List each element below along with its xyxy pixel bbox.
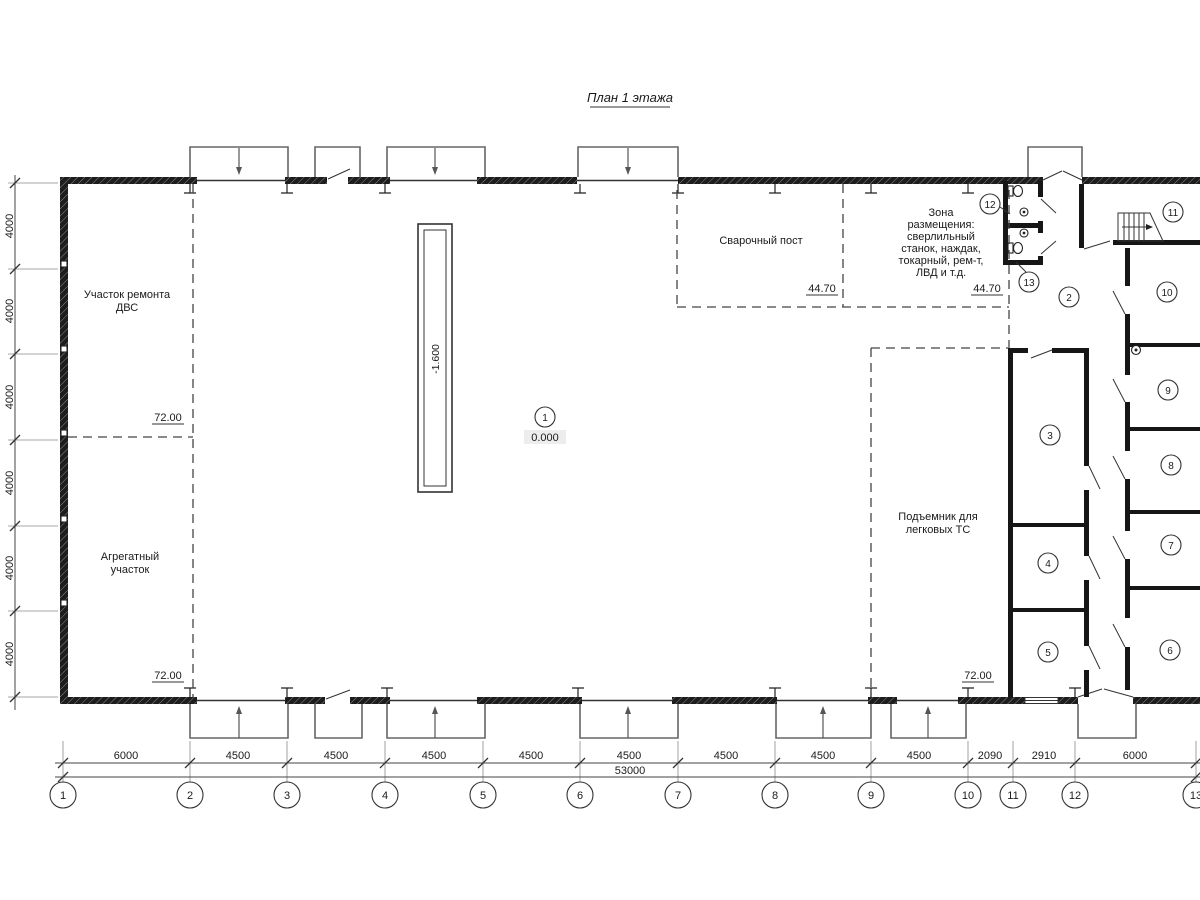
- room-label-zona-1: Зона: [929, 207, 955, 219]
- svg-text:1: 1: [542, 413, 548, 424]
- room-label-zona-5: токарный, рем-т,: [899, 255, 984, 267]
- dim-label: 4000: [4, 642, 16, 666]
- arrow-down-icon: [236, 148, 242, 175]
- room-label-podyemnik-2: легковых ТС: [906, 524, 971, 536]
- svg-text:4: 4: [1045, 559, 1051, 570]
- grid-bubble: 13: [1183, 782, 1200, 808]
- dim-label: 4000: [4, 471, 16, 495]
- sanitary-fixtures: [1008, 186, 1141, 355]
- svg-text:12: 12: [1069, 790, 1081, 802]
- room-number: 8: [1161, 455, 1181, 475]
- room-label-agregat-1: Агрегатный: [101, 551, 159, 563]
- dim-label: 4500: [519, 750, 543, 762]
- room-number: 2: [1059, 287, 1079, 307]
- grid-bubble: 1: [50, 782, 76, 808]
- hall-elevation: 0.000: [531, 432, 559, 444]
- svg-text:3: 3: [1047, 431, 1053, 442]
- elevation-label: 44.70: [973, 283, 1001, 295]
- svg-text:10: 10: [962, 790, 974, 802]
- toilet-icon: [1008, 243, 1023, 254]
- elevation-label: 44.70: [808, 283, 836, 295]
- svg-text:2: 2: [1066, 293, 1072, 304]
- room-labels: Участок ремонта ДВС 72.00 Агрегатный уча…: [84, 207, 1003, 682]
- svg-text:6: 6: [1167, 646, 1173, 657]
- dim-label: 4500: [324, 750, 348, 762]
- grid-bubble: 4: [372, 782, 398, 808]
- dim-label: 4000: [4, 385, 16, 409]
- dim-label: 4500: [811, 750, 835, 762]
- elevation-label: 72.00: [964, 670, 992, 682]
- grid-axis-bubbles: 1 2 3 4 5 6 7 8 9 10 11 12 13: [50, 782, 1200, 808]
- svg-text:7: 7: [1168, 541, 1174, 552]
- svg-text:13: 13: [1190, 790, 1200, 802]
- dim-label: 4000: [4, 556, 16, 580]
- svg-text:13: 13: [1023, 278, 1035, 289]
- elevation-label: 72.00: [154, 412, 182, 424]
- stair-icon: [1118, 213, 1163, 241]
- floor-plan-canvas: План 1 этажа: [0, 0, 1200, 900]
- floor-plan-drawing: План 1 этажа: [0, 0, 1200, 900]
- dim-label: 2090: [978, 750, 1002, 762]
- left-dimensions: 4000 4000 4000 4000 4000 4000: [4, 175, 58, 710]
- svg-text:12: 12: [984, 200, 996, 211]
- sink-icon: [1132, 346, 1141, 355]
- dim-label: 4500: [714, 750, 738, 762]
- arrow-up-icon: [625, 706, 631, 738]
- room-number: 11: [1163, 202, 1183, 222]
- svg-text:3: 3: [284, 790, 290, 802]
- page-title: План 1 этажа: [587, 90, 673, 105]
- svg-text:5: 5: [1045, 648, 1051, 659]
- room-label-dvs-2: ДВС: [116, 302, 138, 314]
- room-number: 1: [535, 407, 555, 427]
- sink-icon: [1020, 208, 1028, 216]
- svg-text:9: 9: [868, 790, 874, 802]
- svg-text:5: 5: [480, 790, 486, 802]
- room-number: 12: [980, 194, 1000, 214]
- arrow-down-icon: [625, 148, 631, 175]
- grid-bubble: 6: [567, 782, 593, 808]
- room-label-zona-6: ЛВД и т.д.: [916, 267, 966, 279]
- room-number: 6: [1160, 640, 1180, 660]
- grid-bubble: 12: [1062, 782, 1088, 808]
- interior-walls: [1003, 181, 1200, 697]
- toilet-icon: [1008, 186, 1023, 197]
- total-dim-label: 53000: [615, 765, 646, 777]
- grid-bubble: 9: [858, 782, 884, 808]
- svg-text:11: 11: [1007, 790, 1018, 802]
- grid-bubble: 10: [955, 782, 981, 808]
- grid-bubble: 8: [762, 782, 788, 808]
- dim-label: 4000: [4, 299, 16, 323]
- room-label-zona-3: сверлильный: [907, 231, 975, 243]
- window: [1025, 698, 1058, 704]
- room-label-agregat-2: участок: [111, 564, 150, 576]
- svg-text:1: 1: [60, 790, 66, 802]
- inspection-pit: -1.600: [418, 224, 452, 492]
- arrow-down-icon: [432, 148, 438, 175]
- grid-bubble: 3: [274, 782, 300, 808]
- dim-label: 6000: [114, 750, 138, 762]
- dim-label: 4500: [907, 750, 931, 762]
- arrow-up-icon: [236, 706, 242, 738]
- room-label-svarka: Сварочный пост: [719, 235, 802, 247]
- svg-text:9: 9: [1165, 386, 1171, 397]
- arrow-up-icon: [820, 706, 826, 738]
- grid-bubble: 5: [470, 782, 496, 808]
- room-label-podyemnik-1: Подъемник для: [898, 511, 977, 523]
- arrow-up-icon: [925, 706, 931, 738]
- gate-leaves: [197, 181, 958, 701]
- svg-text:8: 8: [772, 790, 778, 802]
- dim-label: 4500: [422, 750, 446, 762]
- svg-text:10: 10: [1161, 288, 1173, 299]
- svg-text:8: 8: [1168, 461, 1174, 472]
- entrance-arrow-icons: [236, 148, 931, 738]
- room-number: 10: [1157, 282, 1177, 302]
- dim-label: 4000: [4, 214, 16, 238]
- sink-icon: [1020, 229, 1028, 237]
- room-number: 3: [1040, 425, 1060, 445]
- dim-label: 4500: [226, 750, 250, 762]
- svg-text:6: 6: [577, 790, 583, 802]
- elevation-label: 72.00: [154, 670, 182, 682]
- outer-walls: [60, 177, 1200, 704]
- dim-label: 6000: [1123, 750, 1147, 762]
- room-number: 7: [1161, 535, 1181, 555]
- bottom-dimensions: 6000 4500 4500 4500 4500 4500 4500 4500 …: [55, 741, 1200, 782]
- dim-label: 2910: [1032, 750, 1056, 762]
- room-label-zona-2: размещения:: [907, 219, 974, 231]
- dim-label: 4500: [617, 750, 641, 762]
- room-label-dvs-1: Участок ремонта: [84, 289, 171, 301]
- svg-text:2: 2: [187, 790, 193, 802]
- grid-bubble: 7: [665, 782, 691, 808]
- arrow-up-icon: [432, 706, 438, 738]
- grid-bubble: 11: [1000, 782, 1026, 808]
- room-number: 9: [1158, 380, 1178, 400]
- room-number: 5: [1038, 642, 1058, 662]
- pit-elevation-label: -1.600: [430, 344, 442, 374]
- svg-text:11: 11: [1168, 208, 1179, 219]
- grid-bubble: 2: [177, 782, 203, 808]
- svg-text:4: 4: [382, 790, 388, 802]
- room-number: 4: [1038, 553, 1058, 573]
- svg-text:7: 7: [675, 790, 681, 802]
- room-label-zona-4: станок, наждак,: [901, 243, 981, 255]
- room-number: 13: [1019, 272, 1039, 292]
- canopies: [190, 147, 1136, 738]
